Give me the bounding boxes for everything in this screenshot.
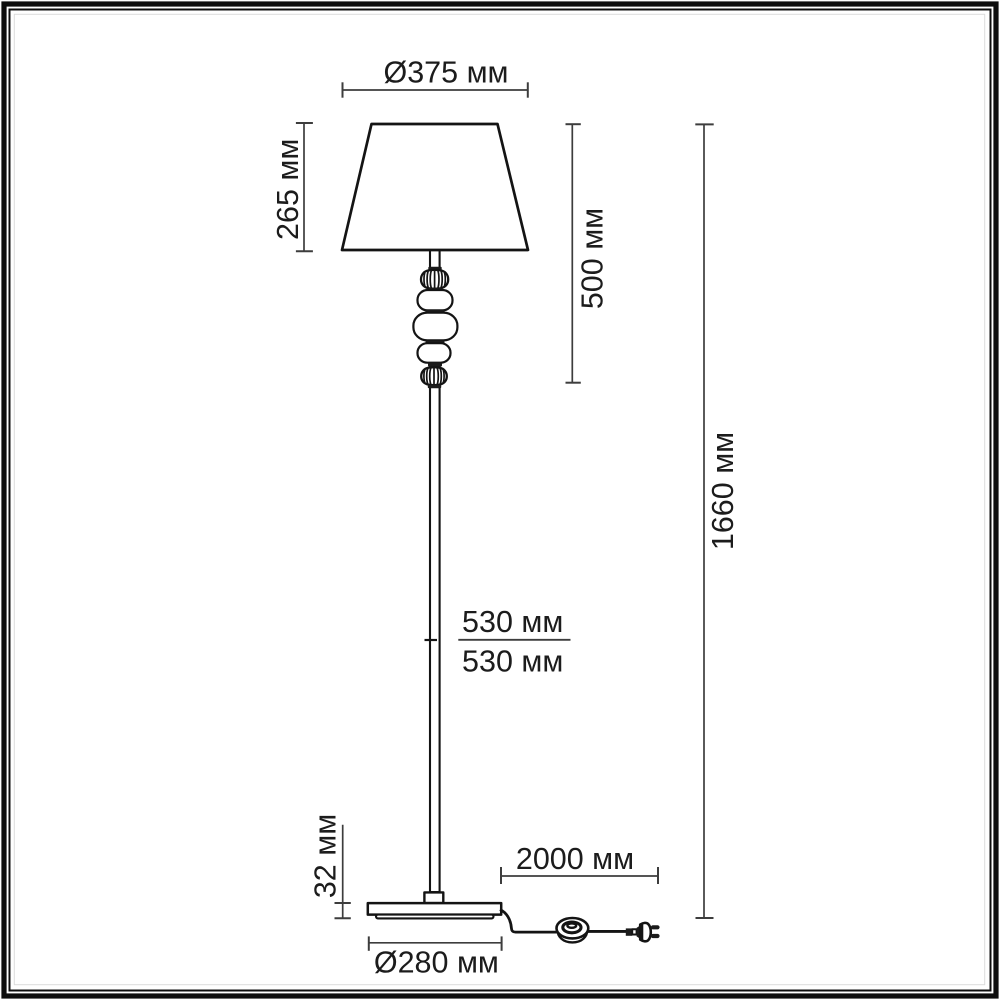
- svg-text:500 мм: 500 мм: [575, 208, 609, 309]
- svg-text:1660 мм: 1660 мм: [706, 432, 740, 550]
- svg-text:530 мм: 530 мм: [462, 645, 563, 679]
- svg-text:Ø280 мм: Ø280 мм: [374, 945, 499, 979]
- svg-text:265 мм: 265 мм: [271, 139, 305, 240]
- svg-text:530 мм: 530 мм: [462, 605, 563, 639]
- svg-text:32 мм: 32 мм: [309, 814, 343, 898]
- svg-text:Ø375 мм: Ø375 мм: [383, 56, 508, 90]
- svg-text:2000 мм: 2000 мм: [516, 842, 634, 876]
